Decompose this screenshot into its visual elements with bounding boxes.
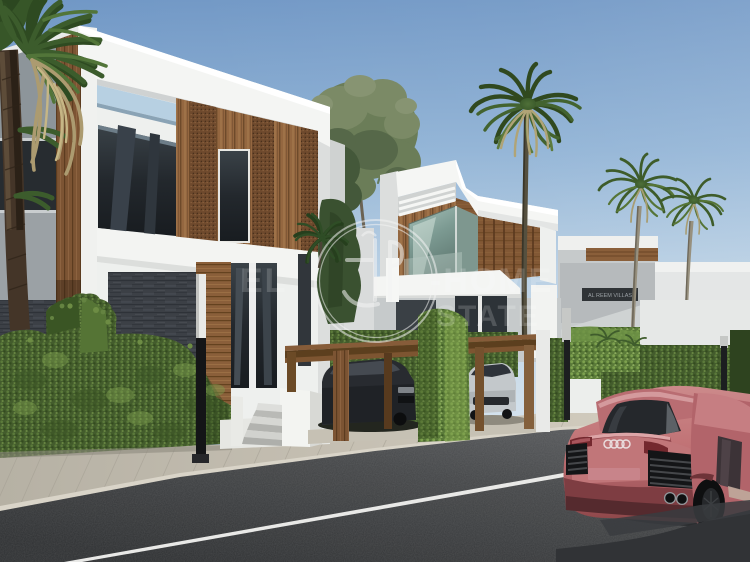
- svg-text:STATE: STATE: [436, 300, 540, 333]
- svg-text:AL REEM VILLAS: AL REEM VILLAS: [588, 293, 632, 299]
- svg-text:EL: EL: [240, 262, 287, 300]
- svg-text:-HOME: -HOME: [430, 262, 553, 300]
